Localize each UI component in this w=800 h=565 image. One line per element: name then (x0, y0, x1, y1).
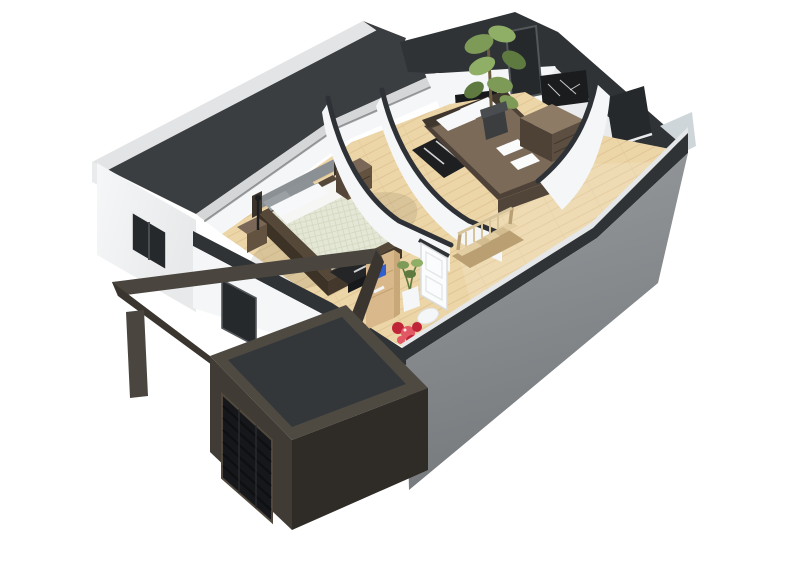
floorplan-svg (0, 0, 800, 565)
floorplan-render (0, 0, 800, 565)
wall-art-right-icon (540, 70, 589, 108)
floor-lamp-head (255, 195, 261, 201)
